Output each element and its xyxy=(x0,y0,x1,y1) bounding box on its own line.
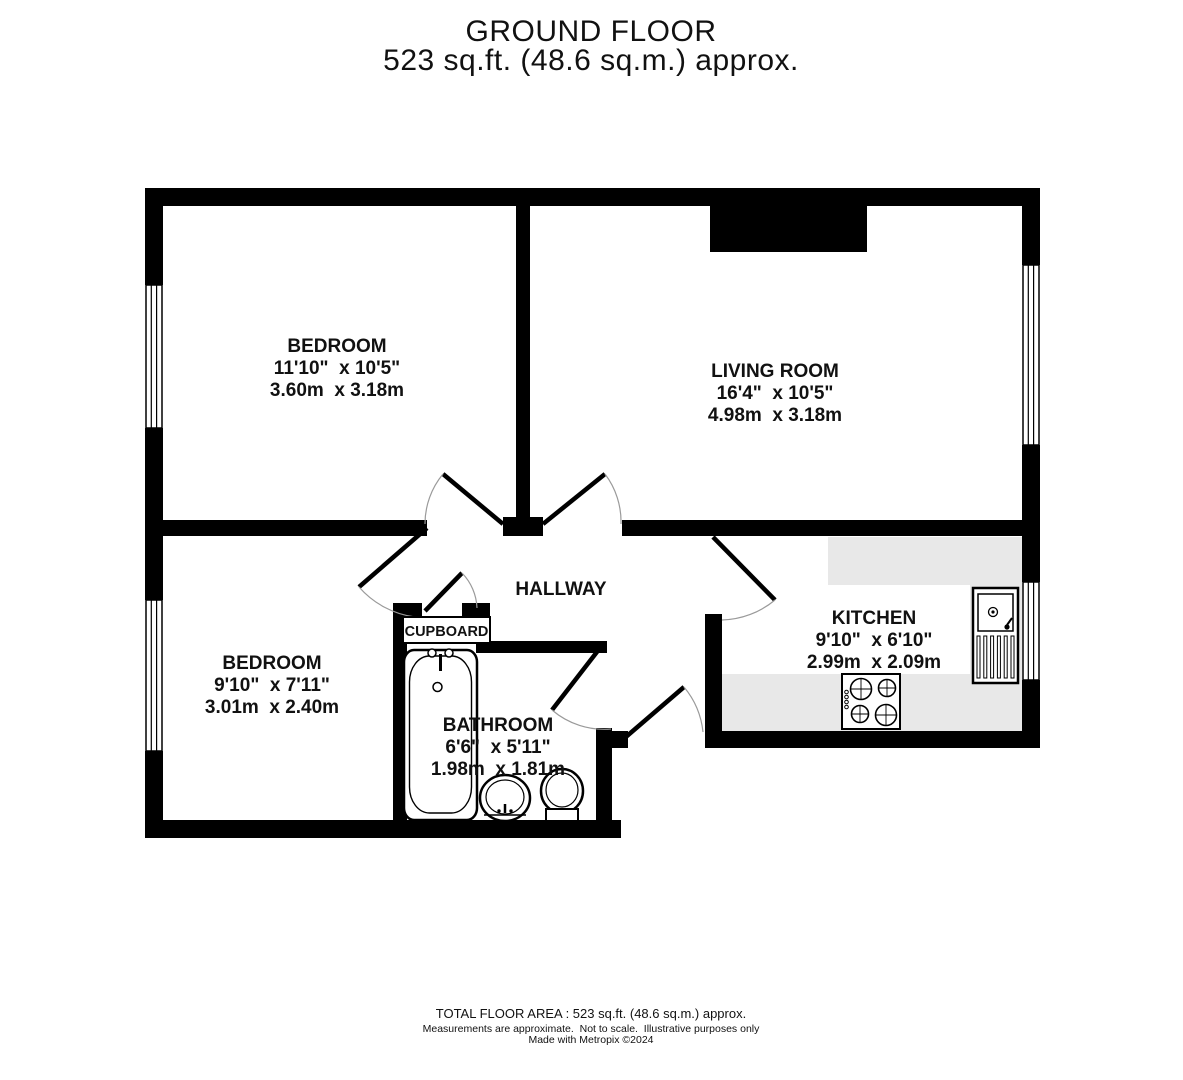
wall-kitchen-left xyxy=(705,614,722,731)
kitchen-hob xyxy=(842,674,900,729)
hob-knob xyxy=(845,695,849,699)
bath-overflow xyxy=(433,683,442,692)
window-frame xyxy=(146,285,162,428)
door-swing-arc xyxy=(722,600,775,620)
credit: Made with Metropix ©2024 xyxy=(528,1034,653,1046)
page-subtitle-area: 523 sq.ft. (48.6 sq.m.) approx. xyxy=(383,44,799,77)
door-leaf xyxy=(620,687,684,742)
wall-exterior-right-upper xyxy=(1022,188,1040,265)
living-room-imperial: 16'4" x 10'5" xyxy=(717,383,834,404)
basin-tap-dot xyxy=(497,809,500,812)
drainer-bar xyxy=(984,636,987,678)
floorplan-page: GROUND FLOOR 523 sq.ft. (48.6 sq.m.) app… xyxy=(0,0,1183,1080)
window-frame xyxy=(1023,265,1039,445)
kitchen-sink xyxy=(973,588,1018,683)
wall-exterior-bottom-left xyxy=(145,820,621,838)
wall-divider-stub xyxy=(503,517,543,536)
bathroom-door xyxy=(552,648,611,729)
living-room-door xyxy=(543,474,621,524)
wall-exterior-left-upper xyxy=(145,188,163,285)
total-floor-area: TOTAL FLOOR AREA : 523 sq.ft. (48.6 sq.m… xyxy=(436,1006,746,1021)
cupboard-label: CUPBOARD xyxy=(405,624,489,640)
bathroom-metric: 1.98m x 1.81m xyxy=(431,759,565,780)
wall-hallway-top-left xyxy=(163,520,427,536)
door-leaf xyxy=(543,474,605,524)
wall-bathroom-right xyxy=(596,728,612,822)
drainer-bar xyxy=(1011,636,1014,678)
drainer-bar xyxy=(977,636,980,678)
floorplan-canvas: GROUND FLOOR 523 sq.ft. (48.6 sq.m.) app… xyxy=(0,0,1183,1080)
bath-tap-handle xyxy=(445,649,453,657)
hob-knob xyxy=(845,690,849,694)
door-leaf xyxy=(443,474,503,524)
living-room-window xyxy=(1023,265,1039,445)
door-swing-arc xyxy=(684,687,703,732)
kitchen-door xyxy=(713,537,775,620)
door-leaf xyxy=(359,528,427,587)
hob-knob xyxy=(845,700,849,704)
door-swing-arc xyxy=(462,573,477,608)
wall-exterior-bottom-right xyxy=(705,731,1040,748)
wall-bedroom-living-divider xyxy=(516,206,530,518)
door-leaf xyxy=(713,537,775,600)
bedroom2-metric: 3.01m x 2.40m xyxy=(205,697,339,718)
door-swing-arc xyxy=(425,474,443,524)
front-door xyxy=(620,687,703,742)
door-leaf xyxy=(552,648,600,710)
basin-tap-dot xyxy=(509,809,512,812)
drainer-bar xyxy=(991,636,994,678)
bedroom2-label: BEDROOM xyxy=(222,653,321,674)
living-room-metric: 4.98m x 3.18m xyxy=(708,405,842,426)
door-swing-arc xyxy=(605,474,621,524)
door-leaf xyxy=(425,573,462,611)
wall-cupboard-top-left xyxy=(393,603,422,616)
sink-tap-base xyxy=(1004,624,1009,629)
wall-exterior-left-mid xyxy=(145,428,163,600)
bath-tap-handle xyxy=(428,649,436,657)
bedroom2-imperial: 9'10" x 7'11" xyxy=(214,675,330,696)
bathroom-label: BATHROOM xyxy=(443,715,553,736)
bedroom1-metric: 3.60m x 3.18m xyxy=(270,380,404,401)
living-room-label: LIVING ROOM xyxy=(711,361,839,382)
drainer-bar xyxy=(1004,636,1007,678)
basin xyxy=(480,775,530,821)
bedroom1-imperial: 11'10" x 10'5" xyxy=(274,358,400,379)
window-frame xyxy=(146,600,162,751)
bedroom1-window xyxy=(146,285,162,428)
kitchen-metric: 2.99m x 2.09m xyxy=(807,652,941,673)
wall-exterior-right-mid xyxy=(1022,445,1040,582)
bedroom1-label: BEDROOM xyxy=(287,336,386,357)
kitchen-imperial: 9'10" x 6'10" xyxy=(816,630,933,651)
kitchen-label: KITCHEN xyxy=(832,608,916,629)
toilet-cistern xyxy=(546,809,578,821)
drainer-bar xyxy=(997,636,1000,678)
wall-bathroom-top xyxy=(490,641,607,653)
hallway-label: HALLWAY xyxy=(515,579,606,600)
wall-hallway-top-right xyxy=(622,520,1022,536)
bathroom-imperial: 6'6" x 5'11" xyxy=(445,737,550,758)
wall-exterior-top xyxy=(145,188,1040,206)
bedroom2-window xyxy=(146,600,162,751)
footer: TOTAL FLOOR AREA : 523 sq.ft. (48.6 sq.m… xyxy=(423,1006,760,1046)
chimney-breast xyxy=(710,206,867,252)
bedroom1-door xyxy=(425,474,503,524)
sink-drain-dot xyxy=(991,610,994,613)
hob-knob xyxy=(845,705,849,709)
door-swing-arc xyxy=(552,710,611,729)
walls xyxy=(145,188,1040,838)
kitchen-window xyxy=(1023,582,1039,680)
window-frame xyxy=(1023,582,1039,680)
